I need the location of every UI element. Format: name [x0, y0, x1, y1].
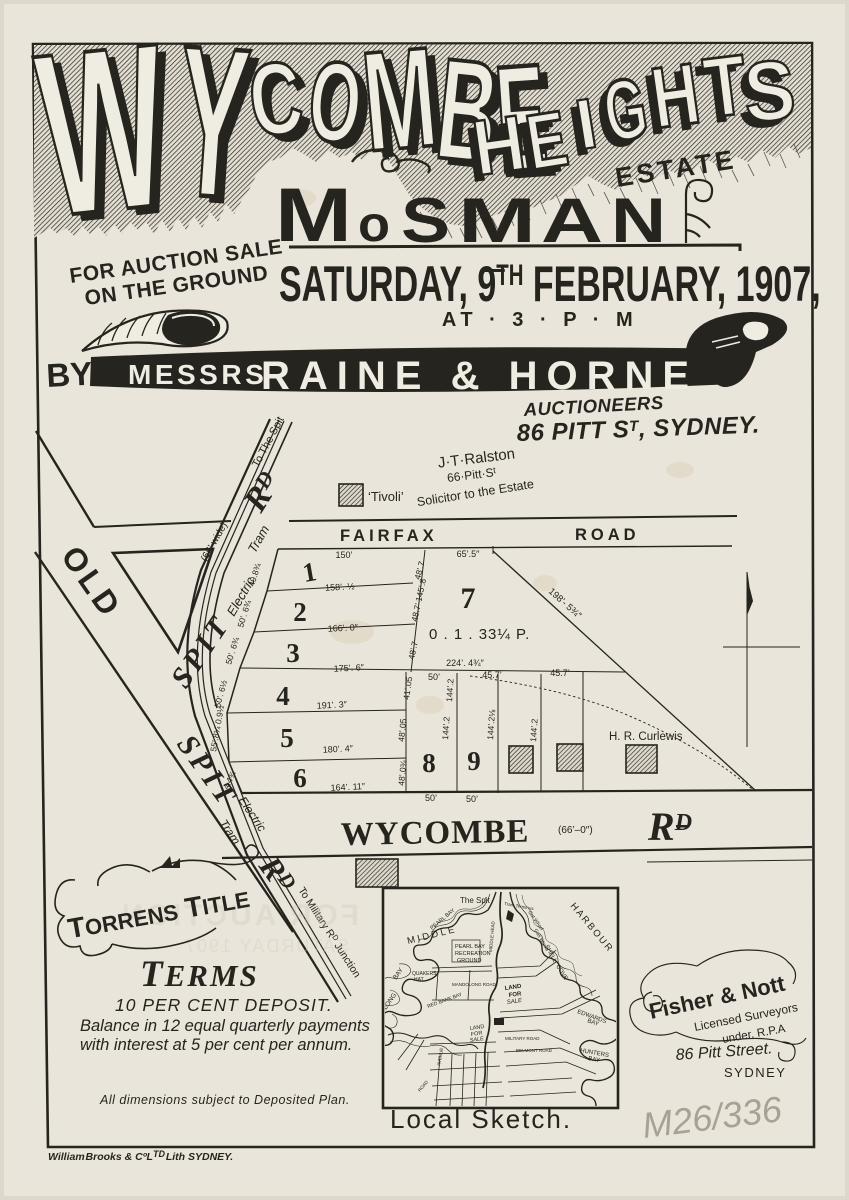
svg-text:H. R. Curlewis: H. R. Curlewis	[609, 731, 683, 743]
svg-text:William Brooks & CºLTD Lith SY: William Brooks & CºLTD Lith SYDNEY.	[48, 1149, 233, 1163]
svg-text:65’.5″: 65’.5″	[457, 549, 481, 559]
svg-text:AT · 3 · P · M: AT · 3 · P · M	[442, 309, 638, 331]
svg-text:150’: 150’	[335, 550, 352, 560]
svg-text:GROUND: GROUND	[457, 958, 481, 964]
svg-text:S: S	[741, 43, 799, 141]
svg-text:‘Tivoli’: ‘Tivoli’	[368, 489, 404, 504]
svg-text:3: 3	[286, 638, 300, 668]
svg-text:MILITARY ROAD: MILITARY ROAD	[505, 1036, 540, 1041]
svg-text:4: 4	[276, 681, 290, 711]
svg-text:SATURDAY, 9TH FEBRUARY, 1907,: SATURDAY, 9TH FEBRUARY, 1907,	[279, 257, 821, 313]
svg-text:All dimensions subject to Depo: All dimensions subject to Deposited Plan…	[99, 1093, 350, 1107]
svg-text:with interest at 5 per cent pe: with interest at 5 per cent per annum.	[80, 1036, 352, 1054]
svg-text:Balance in 12 equal quarterly: Balance in 12 equal quarterly payments	[80, 1017, 370, 1035]
svg-text:144’.2: 144’.2	[444, 678, 456, 702]
svg-text:MANDOLONG ROAD: MANDOLONG ROAD	[452, 982, 497, 987]
svg-text:PEARL BAY: PEARL BAY	[455, 944, 485, 950]
svg-text:50’: 50’	[428, 672, 440, 682]
svg-text:7: 7	[461, 582, 476, 615]
svg-text:45.7’: 45.7’	[550, 668, 570, 678]
svg-text:224’. 4¾″: 224’. 4¾″	[446, 658, 485, 668]
svg-text:144’.2: 144’.2	[440, 716, 452, 740]
svg-text:8: 8	[422, 748, 436, 778]
svg-text:45.7’: 45.7’	[482, 670, 502, 680]
svg-text:O: O	[304, 37, 367, 168]
svg-text:166’. 0″: 166’. 0″	[327, 622, 359, 634]
svg-text:TERMS: TERMS	[140, 954, 259, 995]
svg-text:164’. 11″: 164’. 11″	[330, 781, 366, 793]
svg-text:FAIRFAX: FAIRFAX	[340, 527, 438, 545]
svg-text:WYCOMBE: WYCOMBE	[341, 814, 530, 853]
svg-text:Local Sketch.: Local Sketch.	[390, 1104, 572, 1134]
svg-text:HAT: HAT	[414, 977, 424, 983]
svg-text:2: 2	[293, 597, 307, 627]
svg-text:BY: BY	[45, 355, 93, 394]
svg-text:MESSRS: MESSRS	[128, 359, 267, 390]
svg-text:The Spit: The Spit	[460, 896, 491, 905]
svg-text:o: o	[358, 196, 390, 252]
svg-text:RAINE & HORNE: RAINE & HORNE	[261, 354, 698, 398]
svg-text:144’.2: 144’.2	[528, 718, 540, 742]
svg-text:158’. ½: 158’. ½	[325, 581, 355, 593]
svg-text:ROAD: ROAD	[575, 526, 640, 544]
svg-text:BELMONT ROAD: BELMONT ROAD	[516, 1048, 553, 1053]
svg-text:M: M	[357, 16, 443, 181]
svg-text:0 . 1 . 33¼ P.: 0 . 1 . 33¼ P.	[429, 626, 530, 643]
svg-text:180’. 4″: 180’. 4″	[322, 743, 354, 755]
svg-text:SYDNEY: SYDNEY	[724, 1065, 786, 1080]
svg-text:RECREATION: RECREATION	[455, 951, 491, 957]
svg-text:10 PER CENT DEPOSIT.: 10 PER CENT DEPOSIT.	[115, 995, 333, 1015]
svg-text:9: 9	[467, 746, 481, 776]
svg-text:5: 5	[280, 723, 294, 753]
svg-text:W: W	[27, 0, 179, 267]
svg-text:6: 6	[293, 763, 307, 793]
svg-text:SATURDAY 1907: SATURDAY 1907	[183, 936, 349, 956]
svg-text:191’. 3″: 191’. 3″	[316, 699, 348, 711]
svg-text:175’. 6″: 175’. 6″	[333, 662, 365, 674]
svg-text:50’: 50’	[425, 793, 437, 803]
svg-text:(66’–0″): (66’–0″)	[558, 825, 593, 836]
svg-text:M: M	[275, 173, 352, 258]
svg-text:50’: 50’	[466, 794, 478, 804]
